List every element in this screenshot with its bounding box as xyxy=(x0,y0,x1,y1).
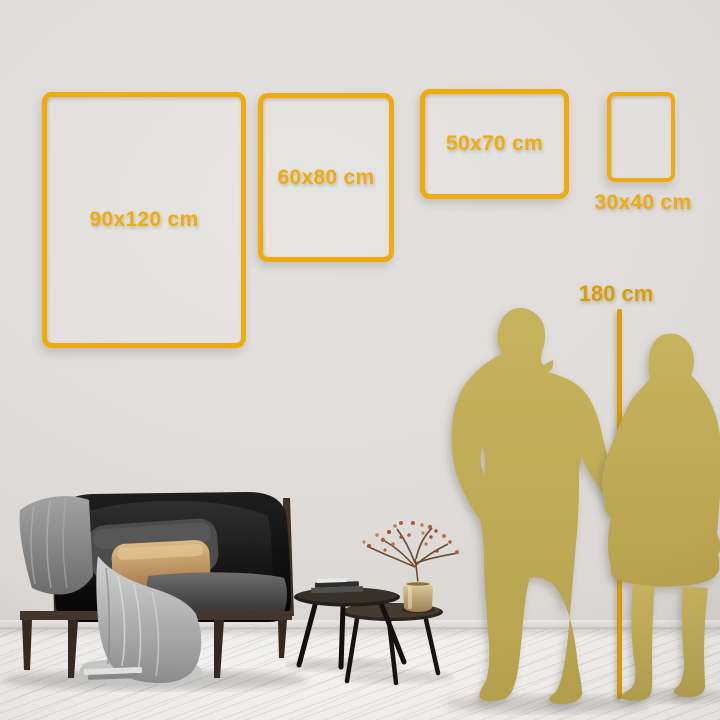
size-label-30x40: 30x40 cm xyxy=(595,191,692,214)
black-sofa xyxy=(0,480,312,720)
size-label-30x40-wrap: 30x40 cm xyxy=(583,191,703,215)
size-frame-60x80: 60x80 cm xyxy=(258,93,394,262)
nesting-coffee-tables xyxy=(285,515,465,687)
size-label-60x80: 60x80 cm xyxy=(278,166,375,190)
size-guide-scene: 90x120 cm 60x80 cm 50x70 cm 30x40 cm 180… xyxy=(0,0,720,720)
size-frame-90x120: 90x120 cm xyxy=(42,92,246,348)
woman-silhouette xyxy=(602,334,720,701)
size-label-90x120: 90x120 cm xyxy=(90,208,199,232)
brass-vase xyxy=(403,581,433,612)
book-stack xyxy=(311,578,363,594)
floor-books xyxy=(84,667,142,680)
size-label-50x70: 50x70 cm xyxy=(446,132,543,156)
gray-blanket xyxy=(20,496,93,594)
size-frame-50x70: 50x70 cm xyxy=(420,89,569,199)
couple-floor-shadow xyxy=(445,695,645,713)
size-frame-30x40 xyxy=(607,92,675,182)
couple-silhouette xyxy=(440,290,720,720)
